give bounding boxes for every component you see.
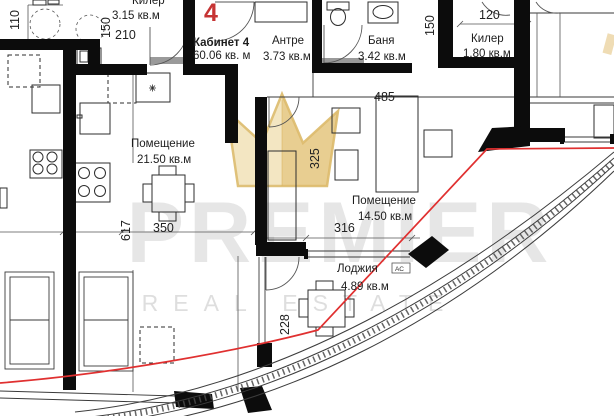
watermark-gold-fragment bbox=[603, 33, 614, 55]
apartment-name-label: Кабинет 4 bbox=[193, 37, 250, 49]
room-kitchen-name: Помещение bbox=[131, 138, 195, 150]
loggia-name: Лоджия bbox=[337, 263, 378, 275]
stove-icon bbox=[30, 150, 62, 178]
ac-spot-dashed bbox=[140, 327, 174, 363]
room-kitchen-area: 21.50 кв.м bbox=[137, 154, 191, 166]
watermark-tagline: REAL ESTATE bbox=[142, 290, 459, 316]
appliance-dashed bbox=[108, 73, 136, 103]
dim-617: 617 bbox=[119, 220, 133, 241]
door-arc bbox=[536, 2, 559, 13]
dim-210: 210 bbox=[115, 28, 136, 42]
room-living-name: Помещение bbox=[352, 195, 416, 207]
dim-110: 110 bbox=[8, 10, 22, 30]
room-living-area: 14.50 кв.м bbox=[358, 211, 412, 223]
dim-228: 228 bbox=[278, 314, 292, 335]
sink-mark-icon bbox=[149, 85, 156, 92]
room-kiler-top-name: Килер bbox=[132, 0, 165, 7]
room-kiler-right-area: 1.80 кв.м bbox=[463, 48, 511, 60]
ac-label: АС bbox=[395, 266, 404, 273]
room-kiler-top-area: 3.15 кв.м bbox=[112, 10, 160, 22]
dim-316: 316 bbox=[334, 221, 355, 235]
toilet-icon bbox=[327, 2, 349, 26]
fixtures bbox=[30, 2, 398, 202]
room-kiler-right-name: Килер bbox=[471, 33, 504, 45]
room-banya-name: Баня bbox=[368, 35, 395, 47]
wardrobe bbox=[376, 96, 418, 192]
apartment-number: 4 bbox=[204, 0, 218, 27]
floor-plan-canvas: PREMIER REAL ESTATE bbox=[0, 0, 614, 416]
room-banya-area: 3.42 кв.м bbox=[358, 51, 406, 63]
apartment-area-label: 60.06 кв. м bbox=[193, 50, 251, 62]
washbasin-icon bbox=[368, 2, 398, 23]
door-arc bbox=[324, 25, 362, 63]
dim-325: 325 bbox=[308, 148, 322, 169]
dim-485: 485 bbox=[374, 90, 395, 104]
fridge bbox=[80, 103, 110, 134]
dim-150-left: 150 bbox=[99, 17, 113, 38]
floor-plan-page: PREMIER REAL ESTATE bbox=[0, 0, 614, 416]
loggia-area: 4.89 кв.м bbox=[341, 281, 389, 293]
dim-350: 350 bbox=[153, 221, 174, 235]
dim-120: 120 bbox=[479, 8, 500, 22]
door-arc bbox=[215, 2, 254, 41]
dim-150-right: 150 bbox=[423, 15, 437, 36]
room-antre-area: 3.73 кв.м bbox=[263, 51, 311, 63]
stove-icon bbox=[75, 163, 110, 202]
room-antre-name: Антре bbox=[272, 35, 304, 47]
